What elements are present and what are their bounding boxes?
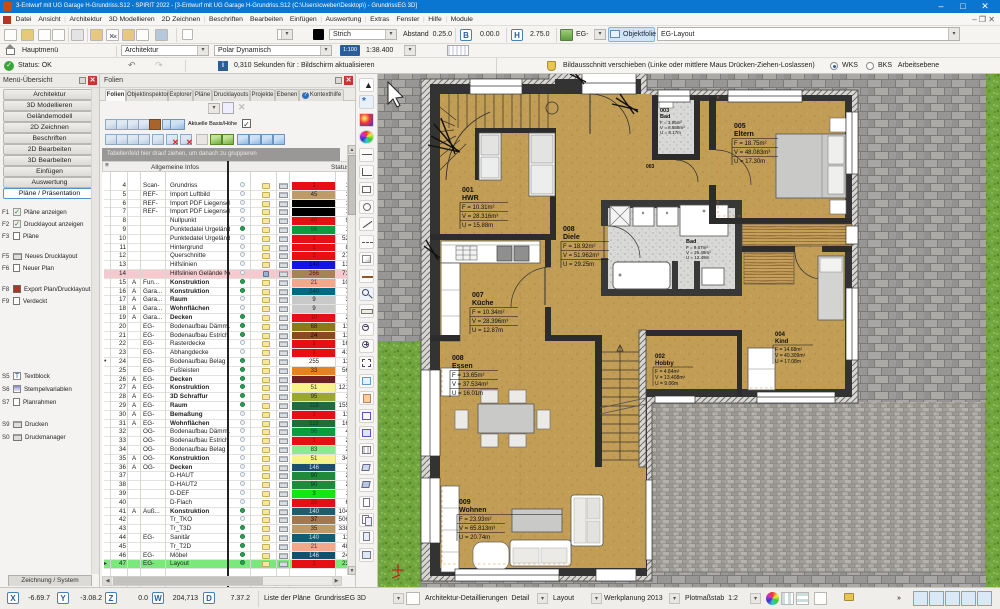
svg-text:U = 12.49m: U = 12.49m bbox=[686, 255, 710, 260]
svg-text:V = 65.813m³: V = 65.813m³ bbox=[459, 526, 495, 532]
svg-text:V = 48.083m³: V = 48.083m³ bbox=[734, 150, 770, 156]
svg-text:Essen: Essen bbox=[452, 363, 473, 370]
svg-text:004: 004 bbox=[775, 332, 786, 338]
svg-text:Küche: Küche bbox=[472, 300, 494, 307]
svg-text:U = 20.74m: U = 20.74m bbox=[459, 535, 490, 541]
svg-text:F = 10.31m²: F = 10.31m² bbox=[462, 205, 495, 211]
svg-text:U = 17.08m: U = 17.08m bbox=[775, 359, 801, 365]
svg-text:U = 15.88m: U = 15.88m bbox=[462, 223, 493, 229]
svg-text:F = 13.65m²: F = 13.65m² bbox=[452, 373, 485, 379]
svg-text:F = 10.34m²: F = 10.34m² bbox=[472, 310, 505, 316]
svg-text:U = 16.01m: U = 16.01m bbox=[452, 391, 483, 397]
svg-text:V = 28.396m³: V = 28.396m³ bbox=[472, 319, 508, 325]
svg-text:008: 008 bbox=[452, 355, 464, 362]
svg-text:Hobby: Hobby bbox=[655, 361, 674, 367]
svg-text:005: 005 bbox=[734, 123, 746, 130]
svg-text:V = 37.534m³: V = 37.534m³ bbox=[452, 382, 488, 388]
svg-text:008: 008 bbox=[563, 226, 575, 233]
svg-text:V = 51.962m³: V = 51.962m³ bbox=[563, 253, 599, 259]
svg-text:007: 007 bbox=[472, 292, 484, 299]
svg-text:V = 28.316m³: V = 28.316m³ bbox=[462, 214, 498, 220]
svg-text:001: 001 bbox=[462, 187, 474, 194]
svg-text:HWR: HWR bbox=[462, 195, 479, 202]
svg-text:U = 12.87m: U = 12.87m bbox=[472, 328, 503, 334]
svg-text:F = 23.93m²: F = 23.93m² bbox=[459, 517, 492, 523]
svg-text:009: 009 bbox=[459, 499, 471, 506]
svg-text:Wohnen: Wohnen bbox=[459, 507, 486, 514]
svg-text:U = 29.25m: U = 29.25m bbox=[563, 262, 594, 268]
svg-text:U = 17.30m: U = 17.30m bbox=[734, 159, 765, 165]
svg-text:F = 18.92m²: F = 18.92m² bbox=[563, 244, 596, 250]
svg-text:U = 8.17m: U = 8.17m bbox=[660, 130, 681, 135]
svg-text:Diele: Diele bbox=[563, 234, 580, 241]
svg-text:Kind: Kind bbox=[775, 339, 789, 345]
svg-text:F = 18.75m²: F = 18.75m² bbox=[734, 141, 767, 147]
svg-text:003: 003 bbox=[646, 164, 655, 170]
svg-text:U = 9.06m: U = 9.06m bbox=[655, 381, 678, 387]
svg-text:Eltern: Eltern bbox=[734, 131, 754, 138]
svg-text:002: 002 bbox=[655, 354, 666, 360]
